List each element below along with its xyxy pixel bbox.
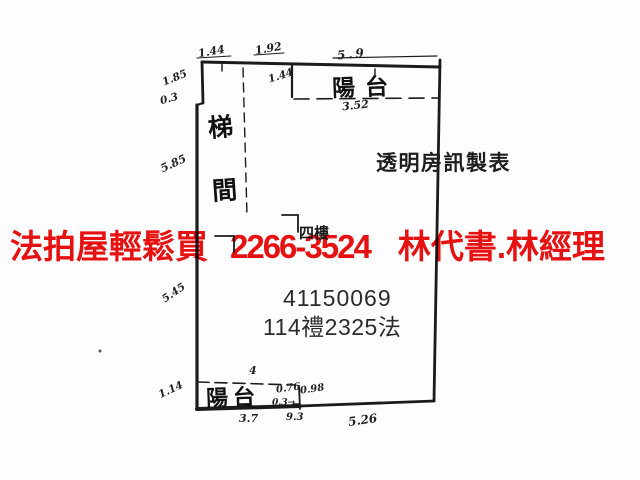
- ad-banner: 法拍屋輕鬆買 2266-3524 林代書.林經理: [10, 220, 605, 268]
- wall-left-upper: [202, 62, 203, 103]
- stairwell-dashed-line: [243, 68, 247, 216]
- stairwell-label-char2: 間: [211, 170, 238, 208]
- dim-label: 3.7: [239, 412, 258, 425]
- stairwell-label-char1: 梯: [206, 107, 234, 145]
- maker-watermark-label: 透明房訊製表: [376, 147, 511, 177]
- ad-phone-number: 2266-3524: [230, 228, 370, 266]
- balcony-label-bottom: 陽台: [205, 379, 260, 413]
- scanned-floorplan-page: 四樓 陽台 梯 間 透明房訊製表 41150069 114禮2325法 陽台 1…: [0, 0, 640, 480]
- wall-top: [202, 62, 440, 67]
- dim-label: 3.52: [341, 98, 369, 114]
- ad-text-left: 法拍屋輕鬆買: [10, 220, 208, 268]
- ad-text-right: 林代書.林經理: [398, 220, 605, 268]
- wall-bottom-right: [300, 401, 434, 406]
- case-id: 114禮2325法: [263, 308, 401, 342]
- scan-speck: [99, 350, 102, 353]
- dim-label: 0.3→: [272, 398, 295, 408]
- dim-label: 9.3: [286, 412, 303, 423]
- dim-label: 4: [249, 364, 257, 377]
